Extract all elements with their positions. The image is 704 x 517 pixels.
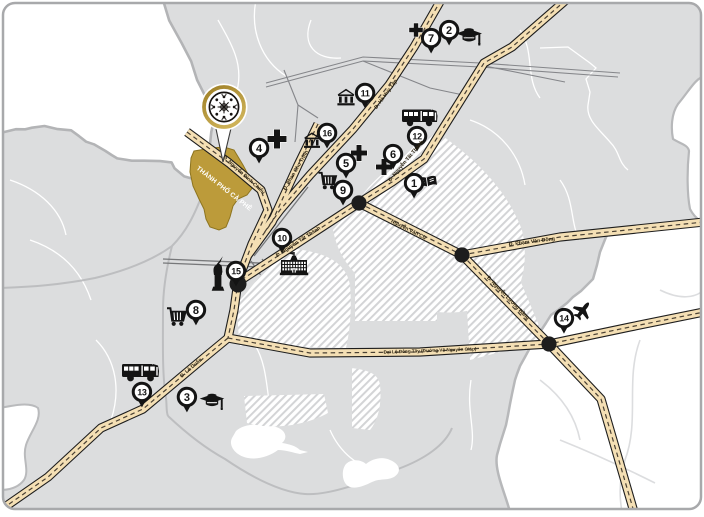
svg-text:14: 14 [559, 313, 569, 323]
svg-text:13: 13 [137, 387, 147, 397]
svg-text:6: 6 [390, 149, 396, 161]
svg-text:9: 9 [340, 185, 346, 197]
svg-text:7: 7 [428, 33, 434, 45]
svg-text:11: 11 [361, 88, 370, 98]
svg-text:2: 2 [446, 25, 452, 37]
svg-text:15: 15 [231, 266, 241, 276]
svg-text:5: 5 [343, 158, 349, 170]
svg-text:1: 1 [411, 178, 417, 190]
svg-text:8: 8 [193, 305, 199, 317]
svg-text:16: 16 [322, 128, 332, 138]
svg-text:3: 3 [184, 392, 190, 404]
svg-text:10: 10 [277, 233, 287, 243]
svg-text:4: 4 [256, 143, 263, 155]
